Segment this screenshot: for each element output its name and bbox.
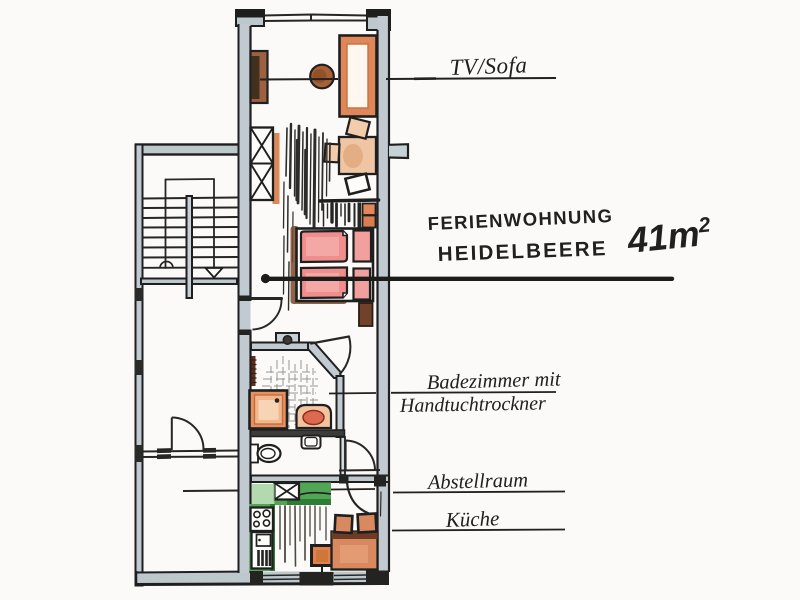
svg-text:Küche: Küche <box>444 506 499 532</box>
svg-text:Abstellraum: Abstellraum <box>426 469 529 494</box>
svg-text:Badezimmer mit: Badezimmer mit <box>427 368 563 394</box>
svg-text:FERIENWOHNUNG: FERIENWOHNUNG <box>427 205 613 234</box>
svg-text:TV/Sofa: TV/Sofa <box>449 52 527 80</box>
svg-text:41m2: 41m2 <box>625 211 714 261</box>
svg-text:Handtuchtrockner: Handtuchtrockner <box>399 392 546 417</box>
svg-text:HEIDELBEERE: HEIDELBEERE <box>437 237 608 266</box>
